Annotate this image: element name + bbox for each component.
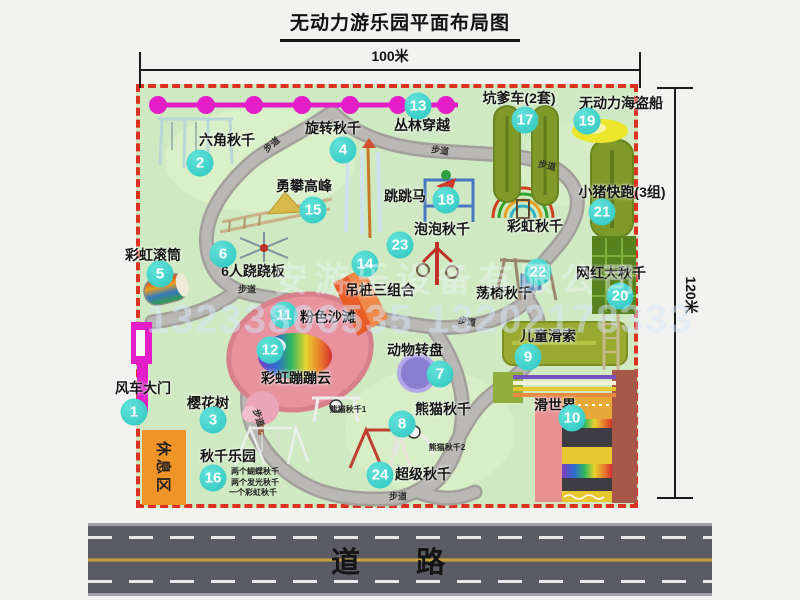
attraction-number-badge: 17	[512, 107, 539, 134]
attraction-label: 跳跳马	[384, 189, 426, 203]
attraction-label: 超级秋千	[395, 467, 451, 481]
attraction-number-badge: 10	[559, 405, 586, 432]
attraction-number-badge: 6	[210, 241, 237, 268]
attraction-number-badge: 13	[405, 93, 432, 120]
attraction-number-badge: 8	[389, 411, 416, 438]
attraction-number-badge: 9	[515, 344, 542, 371]
walkway-label: 步道	[389, 493, 407, 502]
attraction-label: 彩虹秋千	[507, 219, 563, 233]
attraction-number-badge: 15	[300, 197, 327, 224]
width-dimension-label: 100米	[371, 46, 408, 66]
attraction-label: 熊猫秋千	[415, 402, 471, 416]
attraction-number-badge: 21	[589, 199, 616, 226]
road-label: 道 路	[331, 539, 469, 581]
park-plan-screenshot: 无动力游乐园平面布局图	[0, 0, 800, 600]
attraction-number-badge: 7	[427, 361, 454, 388]
attraction-number-badge: 4	[330, 137, 357, 164]
watermark-phone: 13233806535 13202178333	[147, 298, 694, 343]
attraction-label: 泡泡秋千	[414, 222, 470, 236]
attraction-label: 风车大门	[115, 381, 171, 395]
attraction-number-badge: 16	[200, 465, 227, 492]
attraction-label: 彩虹蹦蹦云	[261, 371, 331, 385]
attraction-number-badge: 24	[367, 462, 394, 489]
attraction-label: 丛林穿越	[394, 118, 450, 132]
attraction-label: 动物转盘	[387, 343, 443, 357]
rest-area: 休息区	[142, 430, 186, 505]
attraction-sub-label: 两个发光秋千	[231, 479, 279, 487]
attraction-sub-label: 熊猫秋千2	[429, 444, 465, 452]
page-title: 无动力游乐园平面布局图	[280, 8, 520, 42]
attraction-number-badge: 18	[433, 187, 460, 214]
attraction-sub-label: 两个蝴蝶秋千	[231, 468, 279, 476]
attraction-number-badge: 5	[147, 261, 174, 288]
attraction-sub-label: 熊猫秋千1	[330, 406, 366, 414]
attraction-label: 秋千乐园	[200, 449, 256, 463]
attraction-number-badge: 2	[187, 150, 214, 177]
attraction-label: 勇攀高峰	[276, 179, 332, 193]
attraction-label: 小猪快跑(3组)	[578, 185, 665, 199]
attraction-label: 彩虹滚筒	[125, 248, 181, 262]
attraction-number-badge: 1	[121, 399, 148, 426]
rest-area-label: 休息区	[154, 440, 175, 494]
attraction-label: 坑爹车(2套)	[482, 91, 555, 105]
attraction-number-badge: 3	[200, 407, 227, 434]
attraction-label: 六角秋千	[199, 133, 255, 147]
attraction-number-badge: 19	[574, 108, 601, 135]
walkway-label: 步道	[238, 286, 256, 295]
watermark-company: 安游乐设备有限公司	[274, 253, 643, 302]
attraction-label: 旋转秋千	[305, 121, 361, 135]
road: 道 路	[88, 523, 712, 596]
attraction-sub-label: 一个彩虹秋千	[229, 489, 277, 497]
